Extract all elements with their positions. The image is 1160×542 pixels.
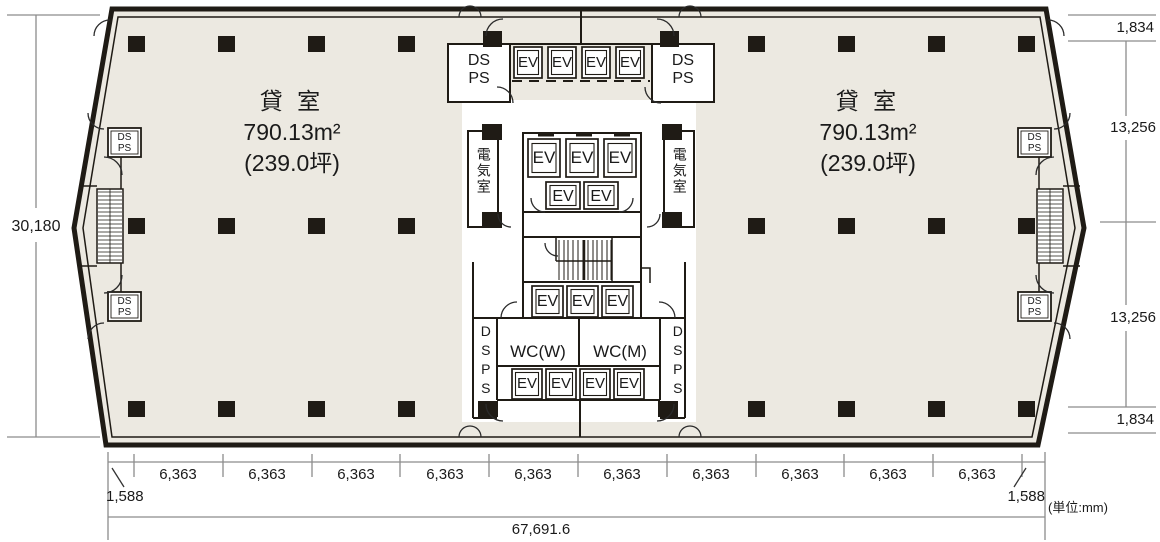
dim-right-lower: 13,256: [1090, 309, 1156, 327]
ev-label: EV: [512, 375, 542, 393]
ev-label: EV: [532, 292, 563, 311]
ev-label: EV: [567, 292, 598, 311]
dim-bottom-left-offset: 1,588: [106, 488, 144, 506]
dsps-edge-left-top-label: DS PS: [108, 132, 141, 154]
ev-label: EV: [604, 148, 636, 168]
electrical-room-left-label: 電気室: [475, 147, 492, 195]
dsps-top-left-label: DS PS: [448, 52, 510, 89]
dsps-vertical-right-label: DSPS: [669, 323, 686, 399]
dim-span: 6,363: [232, 466, 302, 484]
ev-label: EV: [614, 375, 644, 393]
tenant-left-name: 貸 室: [232, 88, 352, 116]
dim-span: 6,363: [143, 466, 213, 484]
dim-right-bottom-offset: 1,834: [1096, 411, 1154, 429]
dim-span: 6,363: [942, 466, 1012, 484]
ev-label: EV: [566, 148, 598, 168]
unit-note: (単位:mm): [1048, 500, 1108, 516]
tenant-right-area: 790.13m²: [798, 119, 938, 147]
ev-label: EV: [546, 375, 576, 393]
dsps-edge-left-bottom-label: DS PS: [108, 296, 141, 318]
dsps-top-right-label: DS PS: [652, 52, 714, 89]
wc-men-label: WC(M): [580, 342, 660, 362]
dim-span: 6,363: [853, 466, 923, 484]
dim-right-upper: 13,256: [1090, 119, 1156, 137]
dim-right-top-offset: 1,834: [1096, 19, 1154, 37]
dim-span: 6,363: [587, 466, 657, 484]
wc-women-label: WC(W): [498, 342, 578, 362]
dim-span: 6,363: [410, 466, 480, 484]
dsps-edge-right-top-label: DS PS: [1018, 132, 1051, 154]
tenant-left-area: 790.13m²: [222, 119, 362, 147]
ev-label: EV: [584, 187, 618, 206]
dim-overall-width: 67,691.6: [491, 521, 591, 539]
dim-span: 6,363: [765, 466, 835, 484]
tenant-right-tsubo: (239.0坪): [798, 150, 938, 178]
tenant-left-tsubo: (239.0坪): [222, 150, 362, 178]
dim-span: 6,363: [321, 466, 391, 484]
dim-bottom-right-offset: 1,588: [985, 488, 1045, 506]
ev-label: EV: [546, 187, 580, 206]
ev-label: EV: [514, 54, 542, 72]
ev-label: EV: [548, 54, 576, 72]
dim-overall-depth: 30,180: [2, 217, 70, 236]
tenant-right-name: 貸 室: [808, 88, 928, 116]
dsps-edge-right-bottom-label: DS PS: [1018, 296, 1051, 318]
dim-span: 6,363: [676, 466, 746, 484]
ev-label: EV: [528, 148, 560, 168]
electrical-room-right-label: 電気室: [671, 147, 688, 195]
ev-label: EV: [582, 54, 610, 72]
ev-label: EV: [602, 292, 633, 311]
ev-label: EV: [616, 54, 644, 72]
stair-block: [523, 237, 641, 282]
floor-plan-drawing: [0, 0, 1160, 542]
dim-span: 6,363: [498, 466, 568, 484]
dsps-vertical-left-label: DSPS: [477, 323, 494, 399]
ev-label: EV: [580, 375, 610, 393]
floor-plan: 貸 室 790.13m² (239.0坪) 貸 室 790.13m² (239.…: [0, 0, 1160, 542]
